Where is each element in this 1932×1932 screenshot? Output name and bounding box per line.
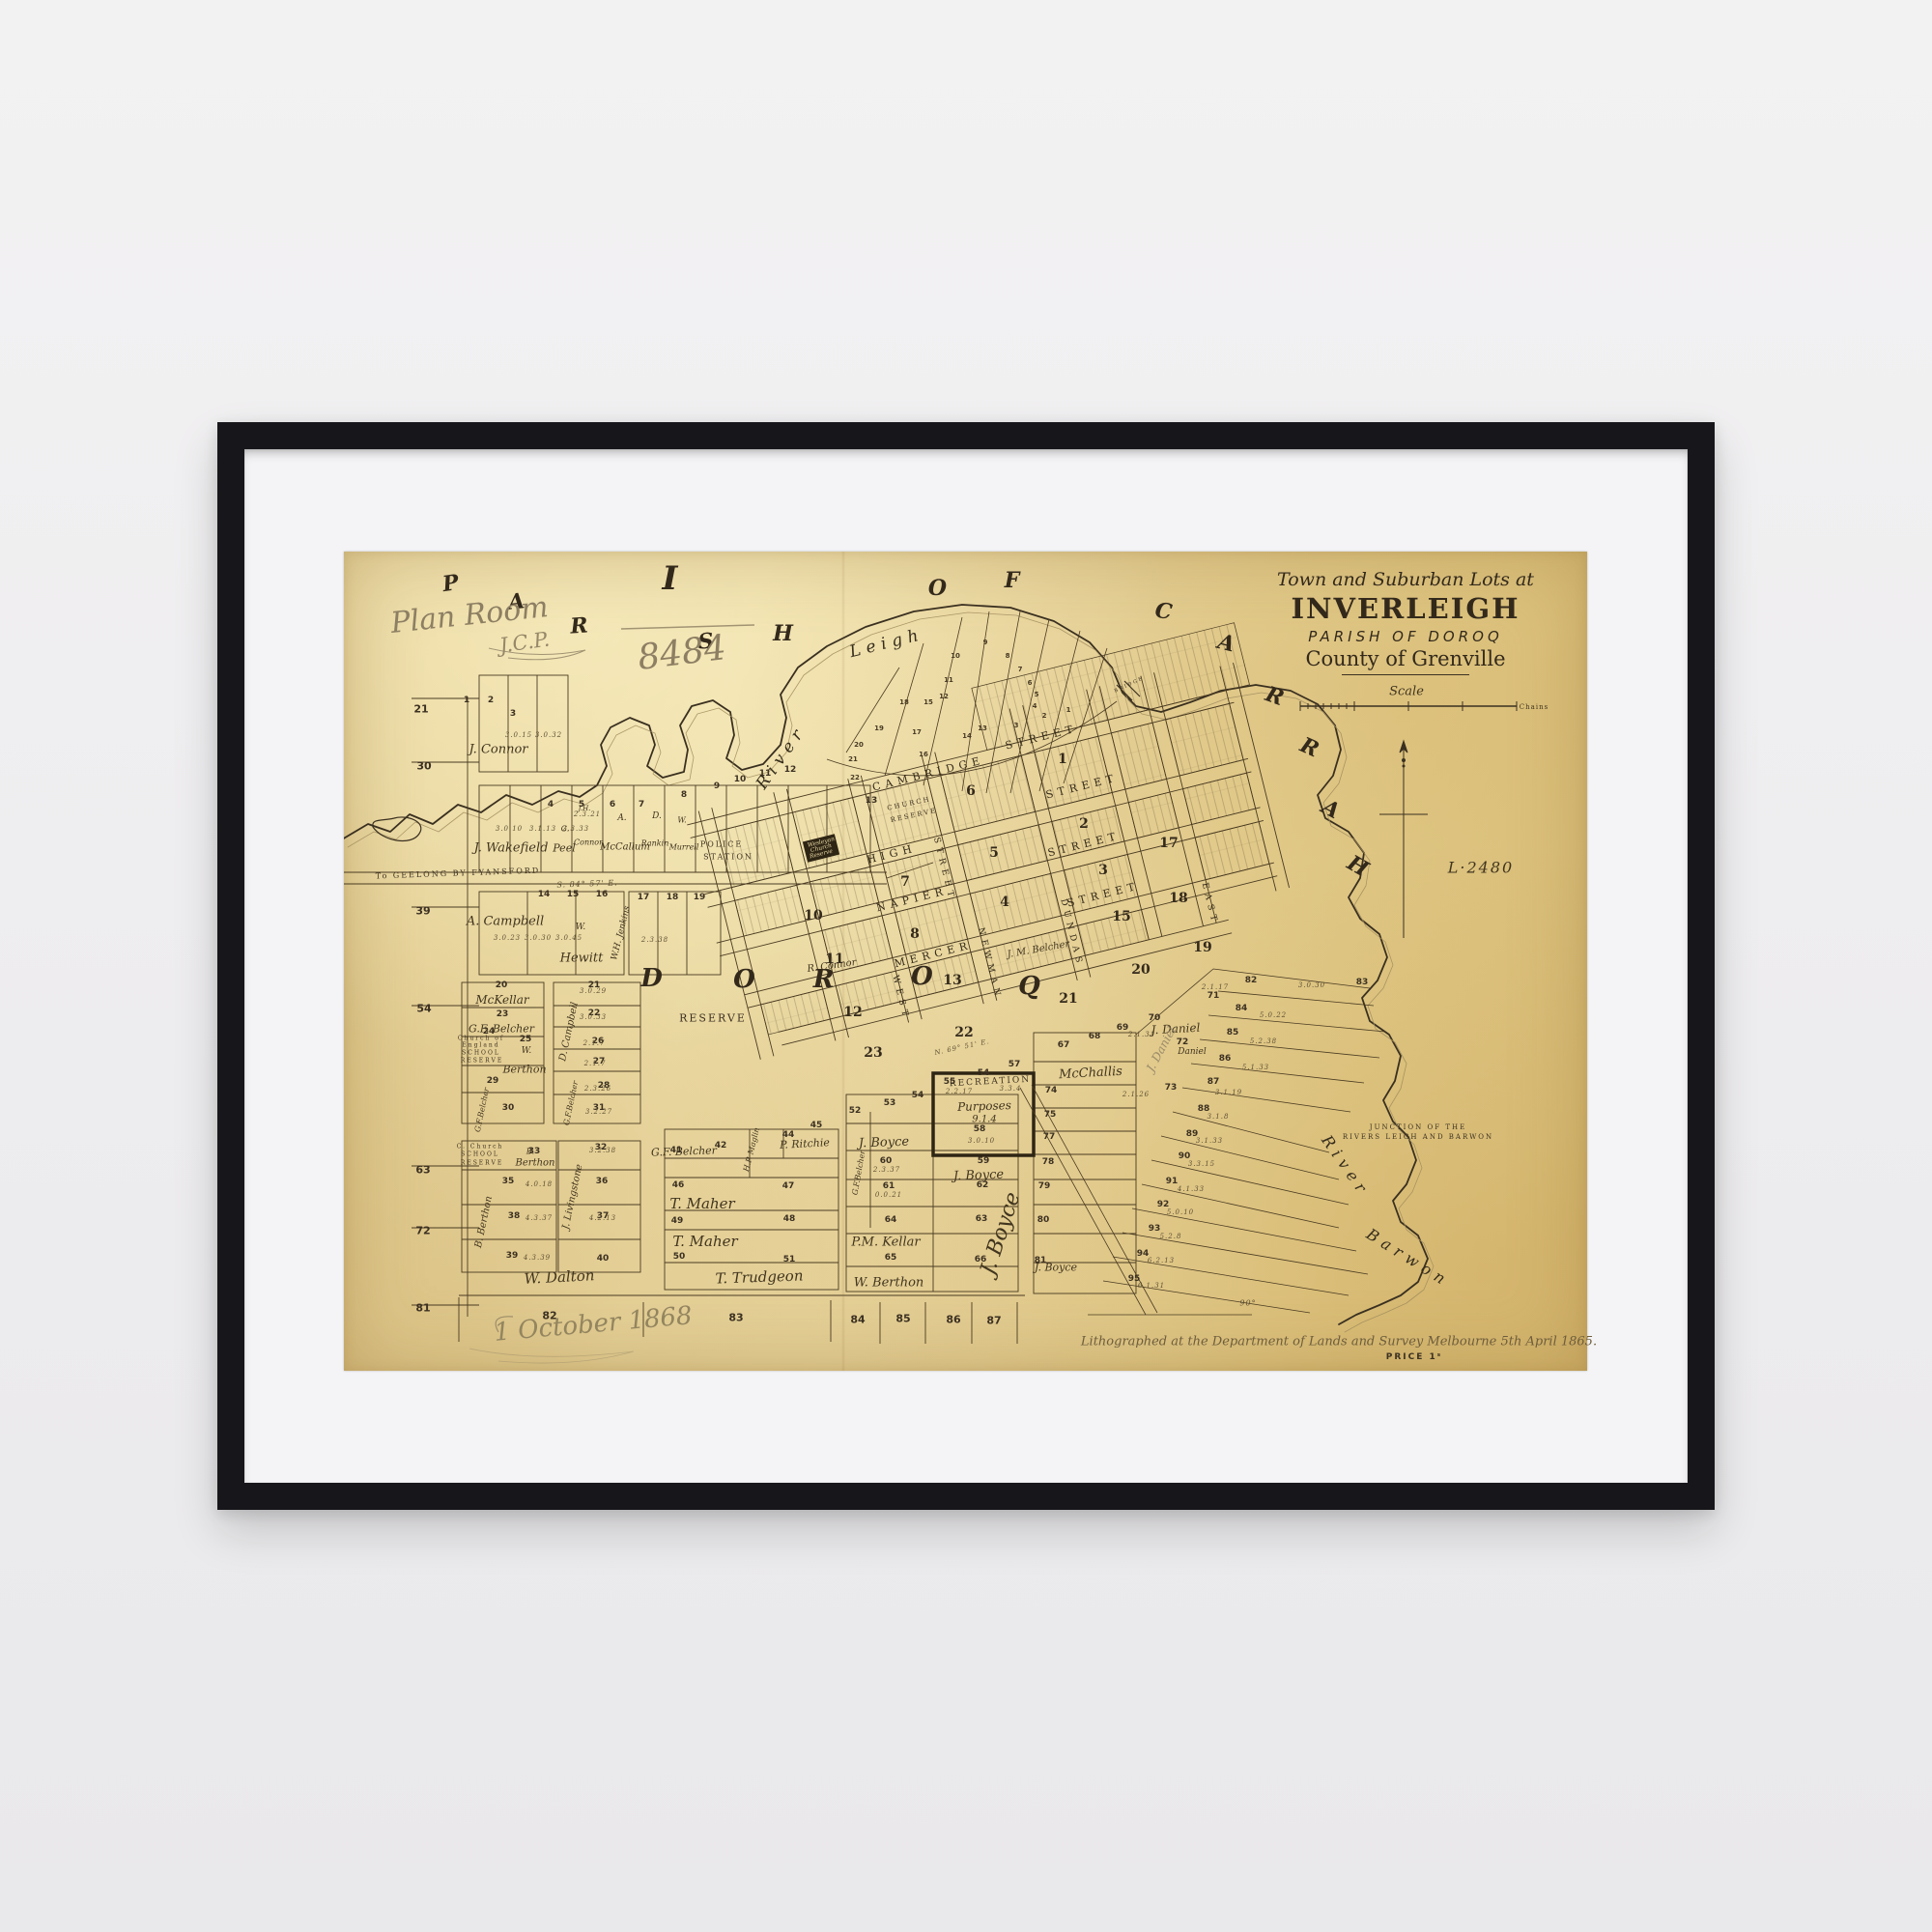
map-label: S. 84° 57' E. [556,878,618,889]
map-label: 5 [579,800,584,810]
map-label: 29 [487,1076,499,1086]
map-label: 23 [497,1009,509,1019]
map-label: 83 [1356,978,1369,987]
map-label: T. Maher [669,1195,734,1212]
map-label: RESERVE [461,1058,503,1065]
map-label: 2.3.33 [562,825,589,833]
map-label: 20 [854,741,864,749]
map-label: 57 [1009,1060,1021,1069]
map-label: 68 [1089,1032,1101,1041]
map-label: 3.1.19 [1215,1089,1242,1096]
map-label: 17 [912,728,922,736]
map-label: 40 [597,1254,610,1264]
map-label: 16 [919,751,928,758]
map-label: 10 [804,908,822,923]
map-label: 61 [883,1181,895,1191]
map-label: J. Connor [469,743,527,757]
map-label: A [1318,794,1345,824]
map-label: 3.1.8 [1207,1113,1230,1121]
map-label: 3.0.29 [580,987,607,995]
map-label: 46 [672,1180,685,1190]
map-label: 54 [416,1003,431,1015]
map-label: 11 [825,952,843,967]
map-label: SCHOOL [462,1050,500,1057]
map-label: J. Wakefield [474,841,549,856]
map-label: 4.2.13 [589,1214,616,1222]
map-label: 47 [782,1181,795,1191]
map-label: 2.1.17 [1202,983,1229,991]
map-label: 3.1.13 [529,825,556,833]
map-label: 3.0.15 [505,731,532,739]
map-label: 3.1.33 [1196,1137,1223,1145]
map-label: 63 [415,1164,430,1177]
price-label: PRICE 1ˢ [1386,1352,1442,1362]
map-label: 50 [673,1252,686,1262]
map-label: 6 [1028,679,1033,687]
map-label: 35 [502,1177,515,1186]
map-label: 63 [976,1214,988,1224]
map-label: Hewitt [560,952,604,966]
map-label: 12 [843,1005,862,1020]
map-label: 20 [496,980,508,990]
map-label: 20 [1131,962,1150,978]
map-label: 3.0.23 [494,934,521,942]
map-label: 18 [1169,891,1187,906]
map-label: 24 [483,1027,496,1037]
map-label: 5 [1035,691,1039,698]
map-label: W. Dalton [524,1266,595,1288]
map-label: 60 [880,1156,893,1166]
map-label: 80 [1037,1215,1050,1225]
map-label: 33 [528,1147,541,1156]
plan-number: L·2480 [1448,859,1514,877]
map-label: 12 [939,693,949,700]
map-label: 1 [464,696,469,705]
map-label: RESERVE [679,1012,747,1025]
map-label: 75 [1044,1110,1057,1120]
map-label: A. Campbell [467,915,544,929]
map-label: 3.0.32 [535,731,562,739]
map-label: P.M. Kellar [851,1236,920,1250]
map-label: 4.1.33 [1178,1185,1205,1193]
map-label: 6.2.13 [1148,1257,1175,1264]
map-label: 10 [734,775,747,784]
map-label: NEWMAN [976,926,1003,1001]
map-label: 81 [1035,1256,1047,1265]
map-label: Berthon [516,1158,555,1169]
map-label: O [911,962,934,991]
map-label: 7 [1018,666,1023,673]
title-town-name: INVERLEIGH [1232,592,1579,625]
map-label: 42 [715,1141,727,1151]
map-label: 6.1.31 [1138,1282,1165,1290]
map-label: 18 [667,893,679,902]
map-label: W. Berthon [854,1276,924,1291]
map-label: 64 [885,1215,897,1225]
map-label: 41 [670,1146,683,1155]
picture-frame: PARISHOFCARRAHDOROQRiverLeighRiverBarwon… [217,422,1715,1510]
map-label: STREET [1046,829,1121,859]
map-label: 19 [694,893,706,902]
map-label: 15 [1112,909,1130,924]
map-label: 79 [1038,1181,1051,1191]
map-label: O [733,965,756,994]
map-label: T. Maher [672,1233,737,1250]
map-label: 3.0.10 [968,1137,995,1145]
map-label: 49 [671,1216,684,1226]
map-label: 25 [520,1035,532,1044]
map-label: W. [522,1046,532,1056]
map-label: 3.0.45 [555,934,582,942]
map-label: 15 [567,890,580,899]
map-label: 18 [899,698,909,706]
map-label: G.F. Belcher [651,1144,717,1158]
map-label: 30 [502,1103,515,1113]
map-label: 82 [1245,976,1258,985]
title-parish: PARISH OF DOROQ [1232,628,1579,645]
map-label: RESERVE [461,1160,503,1167]
map-label: 4 [548,800,554,810]
map-label: R [1262,681,1288,711]
map-label: 39 [506,1251,519,1261]
map-label: 6 [610,800,615,810]
map-label: 2 [1042,712,1047,720]
map-label: 22 [954,1025,973,1040]
map-label: 3 [1014,722,1019,729]
map-label: 39 [415,905,430,918]
map-label: 5.1.33 [1242,1064,1269,1071]
map-label: Church of [458,1036,504,1042]
map-label: Rankin [641,839,669,848]
map-label: 10 [951,652,960,660]
map-label: G.F.Belcher [850,1150,867,1196]
map-label: 55 [944,1077,956,1087]
map-label: 3.3.15 [1188,1160,1215,1168]
map-label: 87 [1207,1077,1220,1087]
map-label: 3 [510,709,516,719]
map-label: 19 [1193,940,1211,955]
map-label: R [569,612,589,639]
map-label: 7 [900,874,910,890]
map-label: 2.1.7 [584,1060,607,1067]
map-label: 59 [978,1156,990,1166]
map-label: 73 [1165,1083,1178,1093]
map-label: Barwon [1363,1225,1454,1291]
title-county: County of Grenville [1232,647,1579,670]
map-label: 3.2.27 [585,1108,612,1116]
map-label: BRIDGE [1114,675,1146,694]
map-label: STREET [1044,771,1119,801]
map-label: HIGH [866,841,918,866]
map-label: England [462,1042,499,1049]
map-label: River [1318,1132,1374,1201]
map-label: 6 [966,783,976,799]
map-label: 2.1.31 [1128,1031,1155,1038]
map-label: 21 [1059,991,1077,1007]
map-label: 5.0.10 [1167,1208,1194,1216]
map-label: R [1296,732,1323,763]
map-label: Peel [553,842,575,855]
map-label: NAPIER [875,885,950,915]
map-label: 9 [714,781,720,791]
map-label: G.F.Belcher [473,1087,492,1133]
scale-label: Scale [1389,685,1424,699]
map-label: P [441,570,462,597]
map-label: 22 [850,774,860,781]
map-label: 3.0.30 [1298,981,1325,989]
map-label: 17 [1159,836,1178,851]
map-label: 4.3.39 [524,1254,551,1262]
map-label: 2.3.37 [873,1166,900,1174]
map-label: Q [1018,972,1041,1001]
map-label: 4.0.18 [526,1180,553,1188]
map-label: D. Campbell [557,1001,581,1062]
map-label: 15 [923,698,933,706]
map-label: 2.3.26 [584,1085,611,1093]
map-label: T. Trudgeon [715,1266,804,1287]
map-label: 3 [1098,863,1108,878]
map-label: 11 [944,676,953,684]
map-label: 53 [884,1098,896,1108]
map-label: Berthon [502,1064,546,1076]
map-label: Murrell [669,843,699,852]
map-label: 17 [638,893,650,902]
map-label: 70 [1149,1013,1161,1023]
map-label: 86 [946,1314,960,1326]
map-label: 84 [850,1314,865,1326]
map-label: D. [652,811,662,821]
map-label: J. Boyce [976,1189,1025,1278]
map-label: 0.0.21 [875,1191,902,1199]
map-label: 93 [1149,1224,1161,1234]
map-label: 5.2.38 [1250,1037,1277,1045]
map-label: 19 [874,724,884,732]
map-label: O [928,576,948,601]
map-label: C. Church [457,1144,504,1151]
map-label: 21 [413,703,428,716]
map-label: J. Boyce [859,1135,910,1151]
map-label: 77 [1043,1132,1056,1142]
map-label: 2.1.7 [583,1039,606,1047]
map-label: G.F.Belcher [562,1080,581,1126]
lithograph-imprint: Lithographed at the Department of Lands … [1081,1335,1597,1350]
map-label: 58 [974,1124,986,1134]
map-label: 45 [810,1121,823,1130]
map-label: 3.2.38 [589,1147,616,1154]
map-label: 8 [910,926,920,942]
map-label: 74 [1045,1086,1058,1095]
map-paper: PARISHOFCARRAHDOROQRiverLeighRiverBarwon… [344,552,1587,1371]
map-label: 3.0.30 [525,934,552,942]
map-label: 16 [596,890,609,899]
map-label: To GEELONG BY FYANSFORD [376,867,541,881]
map-label: H [773,621,794,646]
map-label: 90° [1239,1299,1256,1308]
map-label: C [1153,598,1175,625]
map-label: 4 [1000,895,1009,910]
map-label: 2.2.17 [946,1088,973,1095]
map-label: J. Livingstone [560,1163,584,1230]
map-label: N. 69° 51' E. [934,1037,991,1057]
map-label: 54 [978,1068,990,1078]
map-label: Daniel [1178,1047,1206,1057]
map-label: 5 [989,845,999,861]
map-label: 11 [759,769,772,779]
map-label: 54 [912,1091,924,1100]
map-label: 71 [1207,991,1220,1001]
map-label: 81 [415,1302,430,1315]
wall-background: PARISHOFCARRAHDOROQRiverLeighRiverBarwon… [0,0,1932,1932]
map-label: D [640,964,664,993]
map-label: 21 [848,755,858,763]
map-label: RIVERS LEIGH AND BARWON [1343,1133,1493,1141]
map-label: 13 [866,796,878,806]
map-label: 9.1.4 [972,1115,996,1125]
map-label: B. Berthon [473,1195,495,1249]
map-label: 72 [415,1225,430,1237]
map-label: 52 [849,1106,862,1116]
map-label: 14 [538,890,551,899]
map-label: 23 [864,1045,882,1061]
map-label: J. M. Belcher [1007,939,1070,960]
map-label: 85 [1227,1028,1239,1037]
map-label: 84 [1236,1004,1248,1013]
map-label: McKellar [475,993,528,1007]
map-label: 4 [1033,702,1037,710]
title-subheading: Town and Suburban Lots at [1232,569,1579,590]
map-label: 67 [1058,1040,1070,1050]
map-label: 2.1.26 [1122,1091,1150,1098]
map-label: 9 [983,639,988,646]
map-label: 62 [977,1180,989,1190]
map-label: 83 [728,1312,743,1324]
map-label: 3.0.33 [580,1013,607,1021]
map-label: 91 [1166,1177,1179,1186]
map-label: 69 [1117,1023,1129,1033]
map-label: JUNCTION OF THE [1370,1123,1466,1131]
map-label: EAST [1200,882,1220,926]
map-label: Connor [574,838,603,847]
map-label: W.H. Jenkins [610,905,633,961]
map-label: 4.3.37 [526,1214,553,1222]
map-label: 36 [596,1177,609,1186]
map-label: 65 [885,1253,897,1263]
map-label: WEST [890,975,910,1022]
map-label: 2.3.38 [641,936,668,944]
map-title-block: Town and Suburban Lots at INVERLEIGH PAR… [1232,569,1579,675]
map-label: 38 [508,1211,521,1221]
title-underline [1342,674,1469,675]
map-label: McChallis [1059,1065,1123,1082]
map-label: 5.0.22 [1260,1011,1287,1019]
map-label: River [753,722,810,793]
map-label: SCHOOL [461,1151,499,1158]
map-label: W. [677,816,686,825]
map-label: 13 [943,973,961,988]
map-label: 14 [962,732,972,740]
map-label: A. [617,813,626,823]
map-label: F [1005,568,1021,593]
map-label: 2 [488,696,494,705]
map-label: 1 [1066,706,1071,714]
map-label: 86 [1219,1054,1232,1064]
map-label: 3.0.10 [496,825,523,833]
map-label: H.P. Maglin [742,1126,761,1173]
map-label: 7 [639,800,644,810]
map-label: 51 [783,1255,796,1264]
mat-board: PARISHOFCARRAHDOROQRiverLeighRiverBarwon… [244,449,1688,1483]
map-label: 5.2.8 [1160,1233,1182,1240]
map-label: H [1343,850,1374,882]
map-label: 85 [895,1313,910,1325]
map-label: 12 [784,765,797,775]
map-label: W. [576,923,586,932]
map-label: 66 [975,1255,987,1264]
map-label: POLICE [700,840,743,849]
map-label: 72 [1177,1037,1189,1047]
map-label: Leigh [847,625,925,662]
map-label: I [663,559,679,598]
map-label: 48 [783,1214,796,1224]
map-label: 3.3.4 [1000,1085,1022,1093]
scale-unit-label: Chains [1520,703,1548,711]
map-label: 8 [1006,652,1010,660]
map-label: STATION [703,853,753,862]
map-label: 44 [782,1130,795,1140]
map-label: 13 [978,724,987,732]
map-label: Purposes [957,1098,1011,1114]
map-label: 78 [1042,1157,1055,1167]
map-label: STREET [1065,879,1140,909]
map-label: 2.3.21 [574,810,601,818]
map-label: 2 [1079,816,1089,832]
map-label: 87 [986,1315,1001,1327]
map-label: G.F. Belcher [469,1023,534,1036]
map-label: 30 [416,760,431,773]
map-label: 1 [1058,752,1067,767]
map-label: 8 [681,790,687,800]
